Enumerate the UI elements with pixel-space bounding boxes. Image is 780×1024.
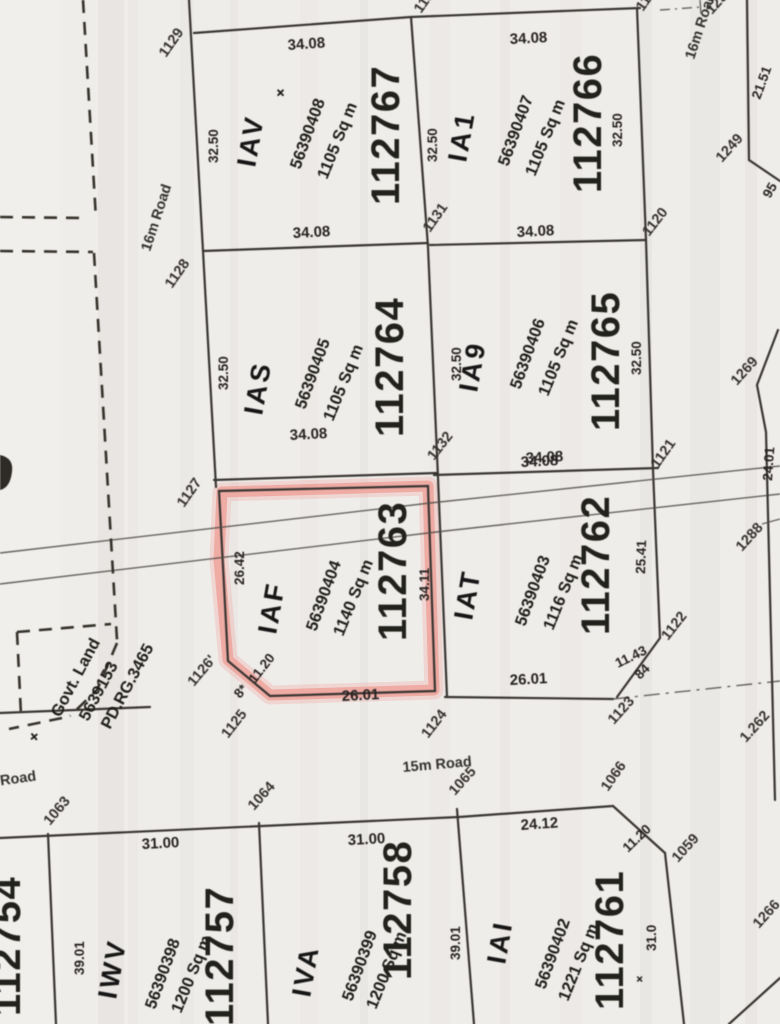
svg-text:32.50: 32.50 [629,341,644,375]
svg-text:34.08: 34.08 [292,223,330,242]
svg-text:31.00: 31.00 [141,834,179,853]
svg-text:39.01: 39.01 [72,941,87,975]
svg-text:32.50: 32.50 [449,347,464,381]
svg-text:32.50: 32.50 [206,129,221,163]
svg-text:34.08: 34.08 [287,34,326,54]
svg-text:32.50: 32.50 [216,356,231,390]
svg-text:112761: 112761 [588,870,632,1010]
svg-text:26.01: 26.01 [509,670,547,689]
svg-text:31.00: 31.00 [347,830,385,849]
svg-text:32.50: 32.50 [610,113,625,147]
svg-text:112757: 112757 [198,886,242,1024]
svg-text:112763: 112763 [371,501,415,641]
svg-text:112767: 112767 [364,65,408,205]
svg-text:34.11: 34.11 [417,567,432,601]
svg-text:34.08: 34.08 [509,29,547,48]
svg-text:34.08: 34.08 [520,452,558,471]
svg-text:25.41: 25.41 [633,539,649,574]
svg-text:26.01: 26.01 [341,686,379,705]
svg-text:34.08: 34.08 [516,222,554,241]
svg-text:112754: 112754 [0,876,29,1016]
svg-text:34.08: 34.08 [289,425,327,444]
svg-text:32.50: 32.50 [425,128,440,162]
svg-text:24.12: 24.12 [520,814,559,834]
svg-text:112765: 112765 [584,291,628,431]
svg-text:26.42: 26.42 [232,551,247,585]
svg-text:112758: 112758 [376,840,420,980]
svg-text:112762: 112762 [574,495,618,635]
svg-text:39.01: 39.01 [448,926,463,960]
svg-text:112764: 112764 [368,297,412,437]
svg-text:31.0: 31.0 [644,925,659,951]
svg-text:24.01: 24.01 [760,446,777,481]
svg-text:112766: 112766 [566,53,610,193]
